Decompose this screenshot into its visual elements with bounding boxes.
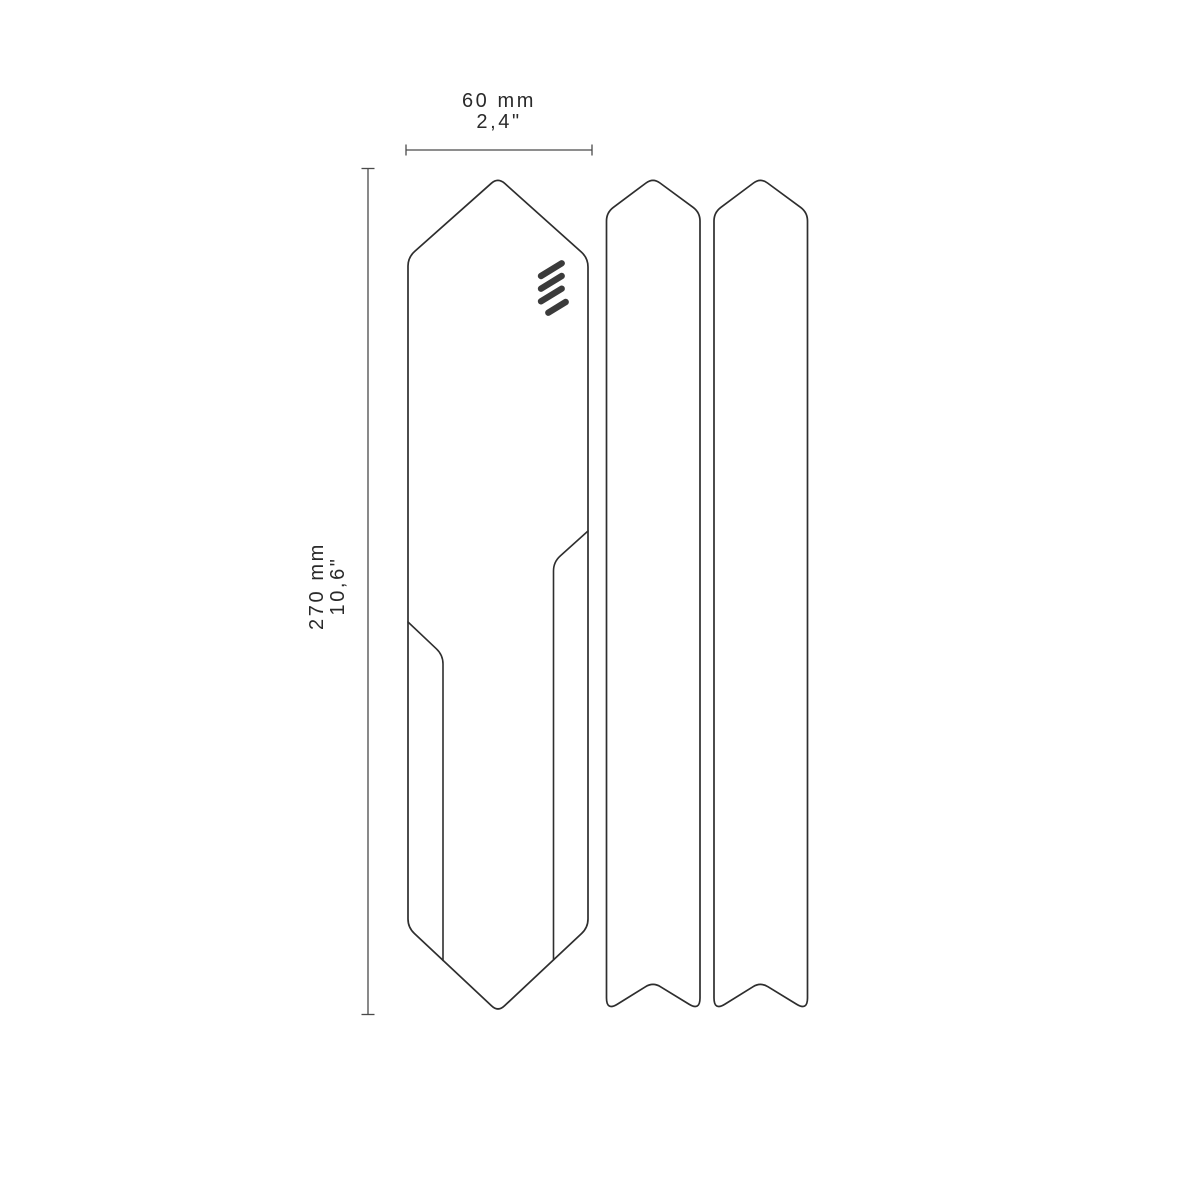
- main-frame-guard: [408, 180, 588, 1009]
- height-mm-label: 270 mm: [307, 486, 328, 686]
- width-dimension: [406, 145, 592, 156]
- height-dimension-label: 270 mm 10,6": [307, 486, 349, 686]
- side-strip-1: [607, 180, 701, 1006]
- diagram-svg: [0, 0, 1197, 1197]
- width-mm-label: 60 mm: [399, 91, 599, 112]
- side-strip-2: [714, 180, 808, 1006]
- width-inch-label: 2,4": [399, 112, 599, 133]
- logo-bar-3: [541, 289, 562, 302]
- height-dimension: [362, 169, 375, 1015]
- main-guard-left-cutline: [408, 622, 443, 960]
- height-inch-label: 10,6": [328, 486, 349, 686]
- brand-logo-icon: [541, 263, 566, 312]
- main-guard-right-cutline: [554, 531, 589, 960]
- product-dimension-diagram: 60 mm 2,4" 270 mm 10,6": [0, 0, 1197, 1197]
- logo-bar-4: [548, 302, 565, 313]
- logo-bar-1: [541, 263, 562, 276]
- logo-bar-2: [541, 276, 562, 289]
- width-dimension-label: 60 mm 2,4": [399, 91, 599, 132]
